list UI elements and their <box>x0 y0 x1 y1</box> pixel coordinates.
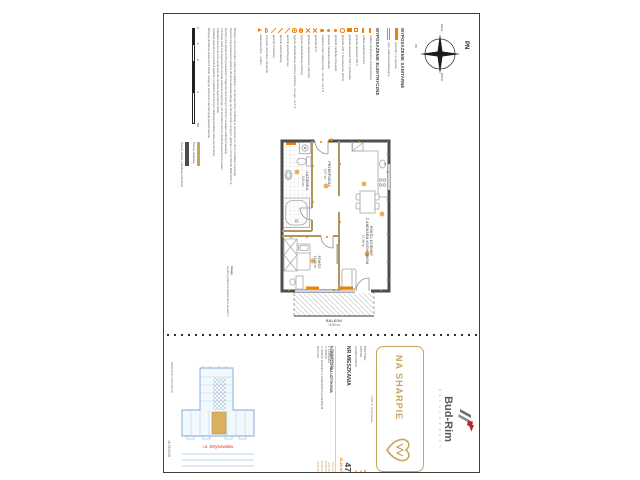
table-row: 2. ŁAZIENKA3,95 m² <box>327 346 331 472</box>
balcony <box>294 291 374 316</box>
unit-rooms-row: LICZBA POKOI 2 <box>354 346 358 472</box>
keyplan-drawing: ul. Strykowska <box>179 366 257 474</box>
highlighted-unit <box>212 412 226 434</box>
kitchen-furniture <box>352 142 388 198</box>
room-label-living: POKÓJ DZIENNY Z ANEKSEM KUCHENNYM 27,38 … <box>360 210 373 272</box>
keyplan-street-label: ul. Strykowska <box>203 444 233 449</box>
room-label-balcony: BALKON ~6,50 m² <box>319 319 349 345</box>
table-row: 1. PRZEDPOKÓJ5,97 m² <box>330 346 334 472</box>
sofa <box>337 244 356 289</box>
legend-walls: Ściany działowe Ściany nośne i obudowy k… <box>180 142 200 242</box>
investment-address: Łódź ul. Strykowska <box>370 346 374 472</box>
wardrobe <box>284 239 297 271</box>
bearing-wall-swatch <box>185 142 189 166</box>
disclaimer-text: Niniejszy rzut ma charakter wyłącznie po… <box>206 28 236 196</box>
table-row: 4. POKÓJ DZIENNY Z ANEKSEM KUCHENNYM27,3… <box>319 346 323 472</box>
partition-wall-swatch <box>197 142 200 166</box>
room-label-hall: PRZEDPOKÓJ 5,97 m² <box>323 152 331 196</box>
bearing-wall-label: Ściany nośne i obudowy kominów <box>180 142 184 242</box>
table-row: BALKON~6,50 m² <box>315 346 319 472</box>
unit-number-value: 47 <box>343 463 353 472</box>
brand-tagline: D E V E L O P M E N T <box>438 364 441 474</box>
partition-wall-label: Ściany działowe <box>192 142 196 242</box>
website-url: www.bud-rim.com.pl <box>170 362 174 393</box>
drawing-sheet: PN ZACH WSCH PD WYPOSAŻENIE SANITARNE gr… <box>163 13 480 473</box>
keyplan-block: ul. Strykowska <box>179 366 257 474</box>
screenshot-canvas: PN ZACH WSCH PD WYPOSAŻENIE SANITARNE gr… <box>0 0 640 480</box>
unit-number-row: NR MIESZKANIA 47 <box>343 346 353 472</box>
unit-info-block: BUDYNEK B PIĘTRO 2 LICZBA POKOI 2 NR MIE… <box>315 346 367 472</box>
note-text: Uwaga: wymiary podano w świetle ścian su… <box>224 266 233 326</box>
investment-logo-text: NA SHARPIE <box>394 355 404 420</box>
scale-bar-segments <box>192 28 196 124</box>
sheet-divider-dotted-line <box>166 334 477 336</box>
room-area-table: 1. PRZEDPOKÓJ5,97 m² 2. ŁAZIENKA3,95 m² … <box>315 346 336 472</box>
investment-logo-box: NA SHARPIE <box>376 346 424 472</box>
room-label-bedroom: POKÓJ 13,96 m² <box>313 242 321 282</box>
unit-area-row: POWIERZCHNIA UŻYTKOWA 51,26 m² <box>338 346 343 472</box>
brand-name: Bud-Rim <box>442 364 453 474</box>
room-label-bath: ŁAZIENKA 3,95 m² <box>301 166 309 196</box>
brand-block: Bud-Rim D E V E L O P M E N T <box>435 364 475 474</box>
bud-rim-logo-icon <box>458 406 475 432</box>
unit-floor-row: PIĘTRO 2 <box>358 346 362 472</box>
unit-building-row: BUDYNEK B <box>363 346 367 472</box>
heart-logo-icon <box>382 433 416 467</box>
scale-bar: 0 1 2 4 6m <box>186 28 200 132</box>
unit-number-label: NR MIESZKANIA <box>345 346 351 386</box>
date-stamp: 16.09.2025 <box>167 440 171 457</box>
